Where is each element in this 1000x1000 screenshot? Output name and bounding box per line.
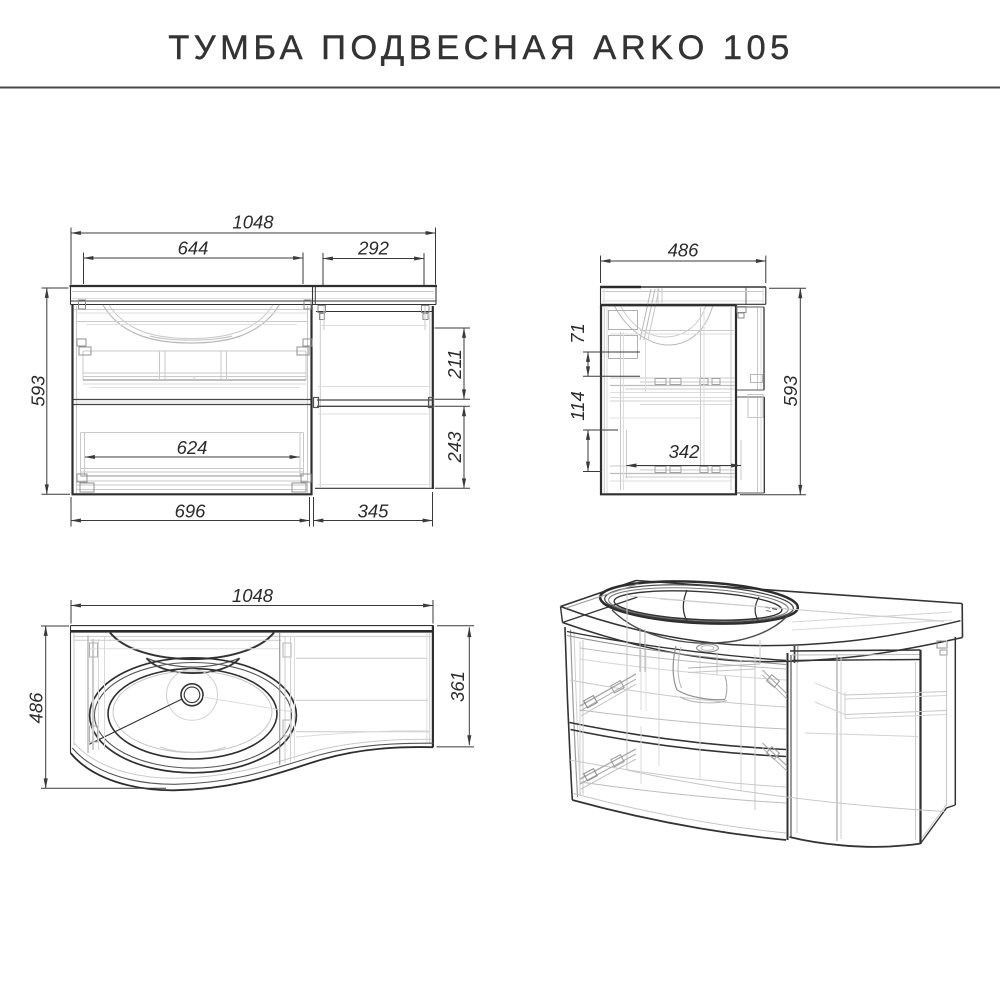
svg-text:486: 486 bbox=[26, 692, 47, 724]
svg-text:593: 593 bbox=[780, 375, 801, 407]
svg-text:1048: 1048 bbox=[232, 212, 274, 233]
svg-text:624: 624 bbox=[177, 437, 208, 458]
svg-text:696: 696 bbox=[175, 501, 207, 522]
svg-text:361: 361 bbox=[447, 671, 468, 702]
svg-text:644: 644 bbox=[178, 238, 209, 259]
svg-text:292: 292 bbox=[357, 238, 390, 259]
svg-text:593: 593 bbox=[28, 375, 49, 407]
svg-text:1048: 1048 bbox=[232, 585, 274, 606]
svg-text:345: 345 bbox=[358, 501, 390, 522]
svg-text:71: 71 bbox=[567, 323, 588, 344]
svg-text:114: 114 bbox=[567, 391, 588, 421]
svg-text:211: 211 bbox=[444, 349, 465, 380]
svg-text:ТУМБА ПОДВЕСНАЯ ARKO 105: ТУМБА ПОДВЕСНАЯ ARKO 105 bbox=[168, 29, 794, 67]
svg-text:243: 243 bbox=[444, 431, 465, 464]
svg-text:342: 342 bbox=[669, 441, 701, 462]
svg-text:486: 486 bbox=[668, 240, 700, 261]
